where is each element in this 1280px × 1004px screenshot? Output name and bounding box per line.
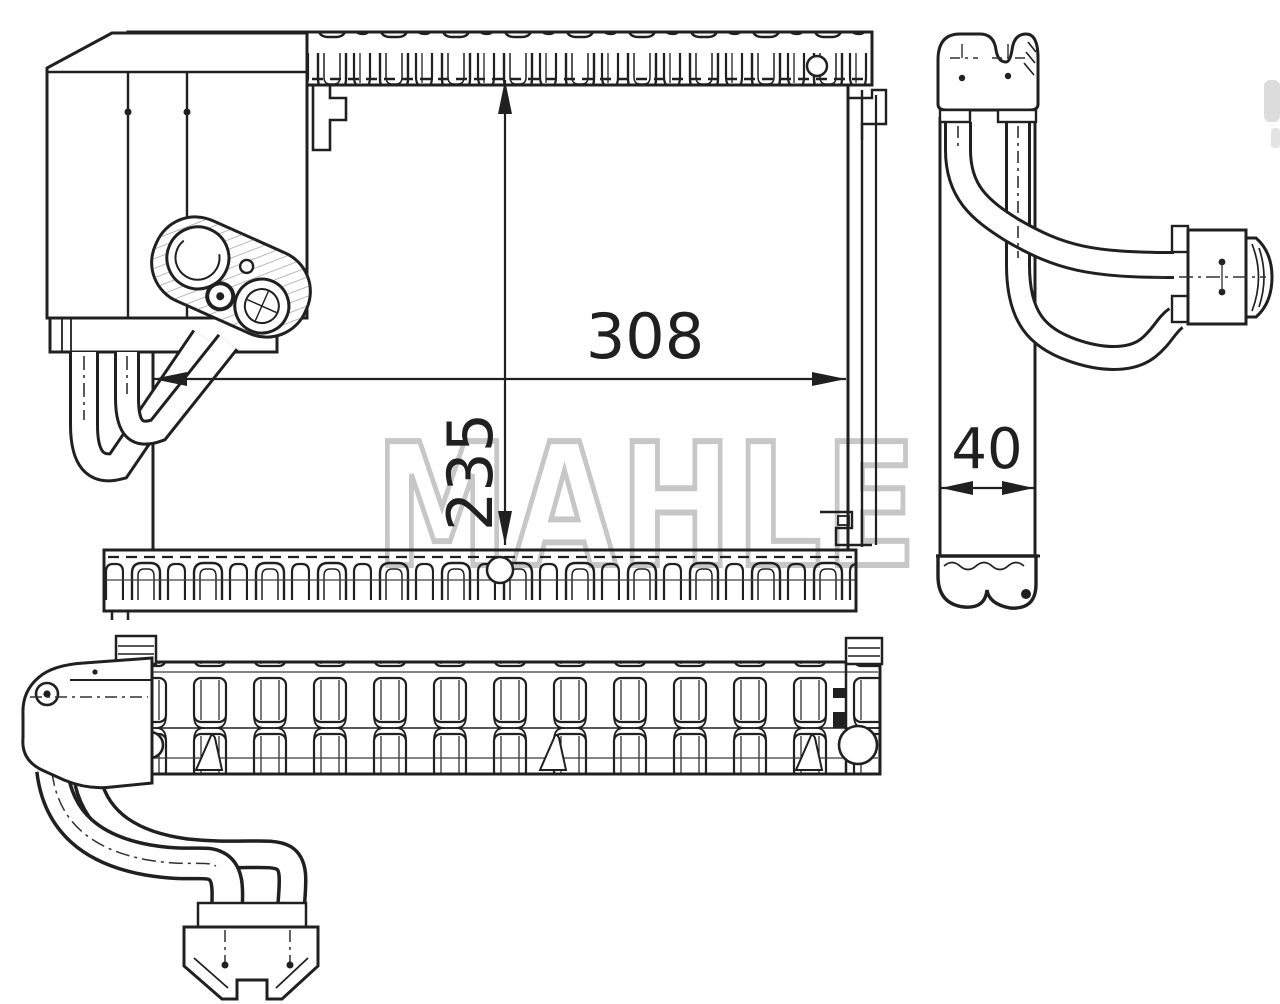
artifact-shape-2 [1271,128,1280,148]
side-top-cap [938,34,1038,122]
block-collar [198,903,306,927]
block-dot-2 [287,962,294,969]
header-bracket-step [313,85,346,150]
dimension-width-arrow-right [812,372,846,386]
core-top-right-notch [848,90,886,140]
side-pipes [958,122,1176,358]
bottom-strip-outline [130,662,880,774]
end-cap-outline [23,658,152,788]
strip-clip-2 [833,712,846,728]
bottom-pipes [52,770,293,907]
end-cap-dot [92,669,97,674]
bottom-strip-outline [104,550,856,611]
side-view: 40 [936,34,1272,608]
feet-dark-dot [1021,589,1031,599]
cap-collar-left [940,110,970,122]
block-body [184,927,318,999]
dimension-depth-arrow-left [941,481,973,495]
cap-dot-1 [959,75,965,81]
cap-dot-2 [1005,73,1011,79]
strip-right-hole [839,726,877,764]
technical-drawing-page: MAHLE [0,0,1280,1004]
block-dot-1 [222,962,229,969]
strip-clip-1 [833,688,846,698]
top-strip-hole [807,56,827,76]
cap-outline [938,34,1038,110]
edge-artifact [1264,80,1280,148]
bottom-strip [116,636,882,774]
bottom-strip-hole [487,557,513,583]
fitting-flange-top [1172,226,1188,252]
side-bottom-feet [936,556,1040,608]
side-pipe-front-white [958,122,1174,265]
front-bottom-fin-strip [104,550,856,620]
dimension-depth: 40 [941,417,1034,495]
dimension-depth-arrow-right [1002,481,1034,495]
dimension-height-value: 235 [434,413,507,531]
strip-top-tab-right [846,638,882,664]
bracket-dot-1 [125,109,132,116]
bottom-view [23,636,882,999]
bracket-dot-2 [184,109,191,116]
dimension-height: 235 [434,80,512,545]
cap-collar-right [998,110,1036,122]
dimension-depth-value: 40 [951,417,1022,482]
fitting-flange-bottom [1172,296,1188,322]
bottom-connector-block [184,903,318,999]
evaporator-technical-drawing: MAHLE [0,0,1280,1004]
artifact-shape [1264,80,1280,122]
bottom-end-cap [23,658,152,788]
front-pipes [84,338,228,467]
dimension-width-value: 308 [586,300,704,373]
